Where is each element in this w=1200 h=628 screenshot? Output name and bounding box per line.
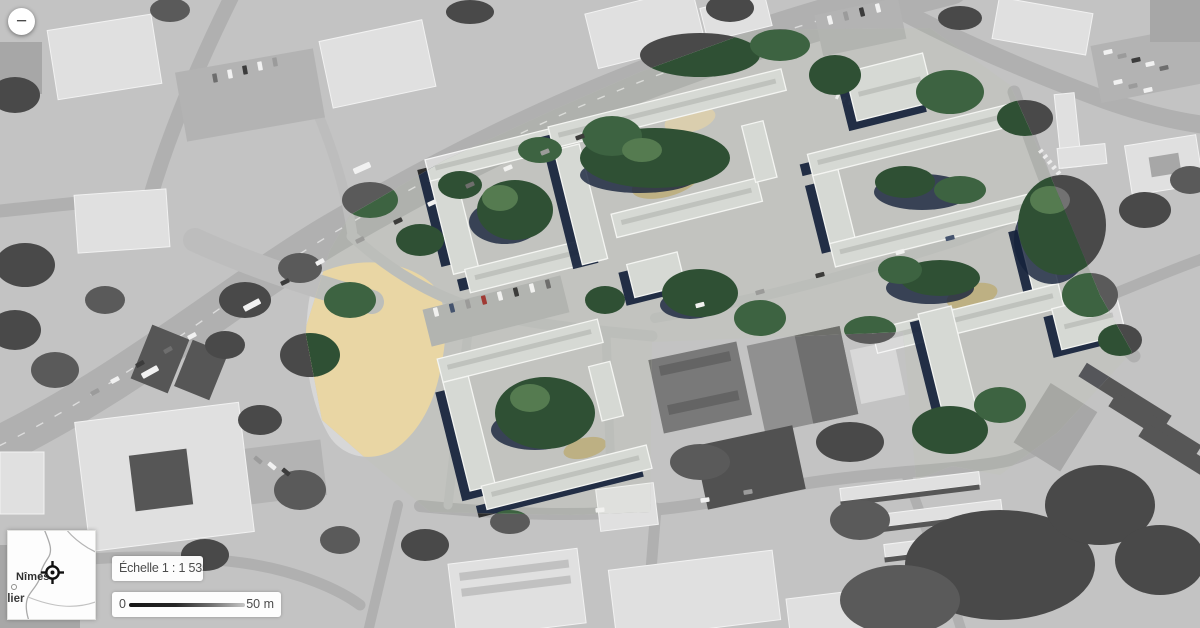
- minimap-city-label: Nîmes: [16, 571, 50, 583]
- scale-bar-end-label: 50 m: [246, 592, 274, 617]
- scale-bar-line: [129, 603, 245, 607]
- scale-bar-start-label: 0: [119, 592, 126, 617]
- overview-minimap[interactable]: Nîmes llier: [7, 530, 96, 620]
- aerial-photo: [0, 0, 1200, 628]
- scale-bar: 0 50 m: [112, 592, 281, 617]
- scale-ratio-label: Échelle 1 : 1 535: [112, 556, 203, 581]
- city-dot-marker: [11, 584, 17, 590]
- minimap-clipped-city-label: llier: [7, 593, 24, 605]
- aerial-map-viewport[interactable]: [0, 0, 1200, 628]
- minus-icon: −: [16, 12, 27, 31]
- zoom-out-button[interactable]: −: [8, 8, 35, 35]
